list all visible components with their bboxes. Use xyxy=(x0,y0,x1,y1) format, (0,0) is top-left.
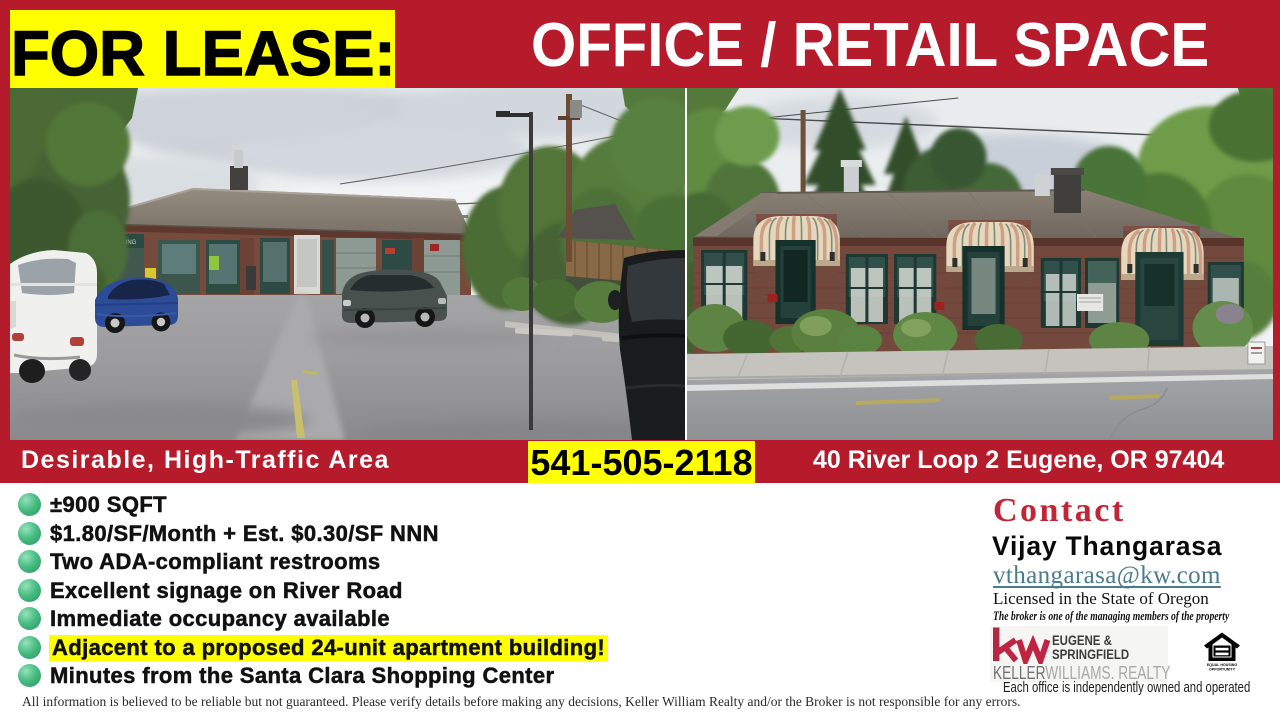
svg-text:OPPORTUNITY: OPPORTUNITY xyxy=(1209,668,1236,672)
svg-text:EQUAL HOUSING: EQUAL HOUSING xyxy=(1207,663,1237,667)
